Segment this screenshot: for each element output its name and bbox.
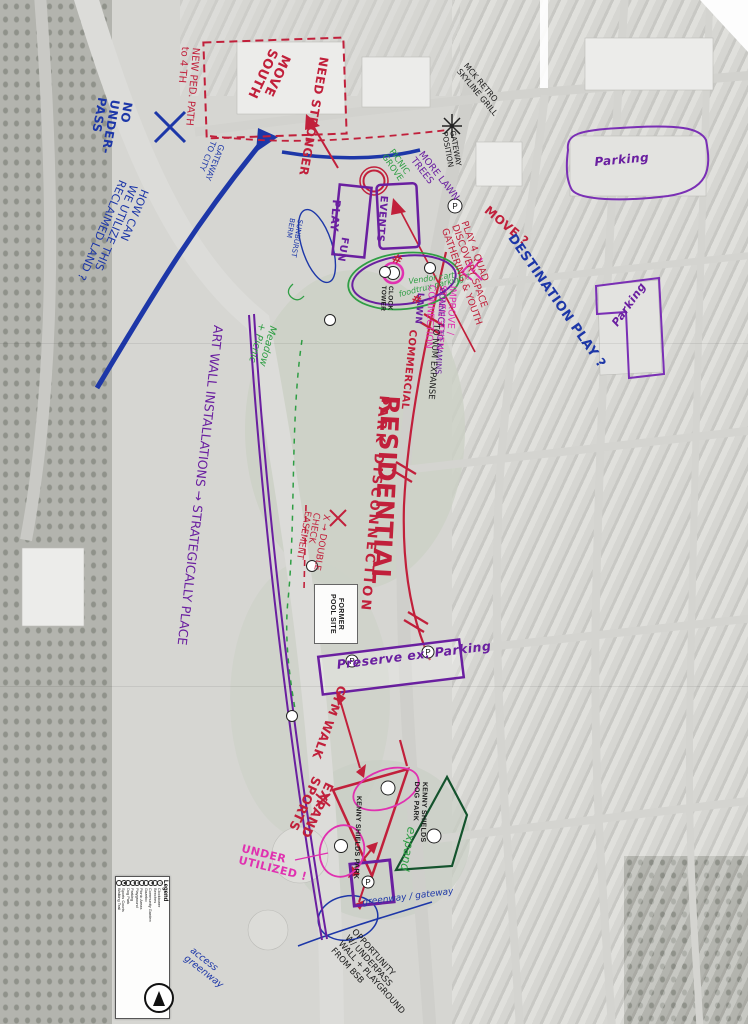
legend-item: ▲Playground xyxy=(135,880,140,1015)
clock-tower-label: CLOCK TOWER xyxy=(379,286,394,312)
north-arrow-triangle xyxy=(153,991,165,1006)
green-scribble xyxy=(288,284,304,300)
legend-item: ╌Walking Trail xyxy=(117,880,122,1015)
red-x-easement xyxy=(330,510,346,526)
annotated-park-plan-scan: P P P P NO UNDER- PASS HOW CAN WE UTILIZ… xyxy=(0,0,748,1024)
walking-trail-icon xyxy=(325,315,336,326)
walking-trail-icon xyxy=(287,711,298,722)
sports-courts-icon xyxy=(381,781,395,795)
legend-item-label: Playground xyxy=(135,888,140,908)
legend-item-label: Walking Trail xyxy=(117,888,122,910)
picnic-icon xyxy=(425,263,436,274)
legend-item-label: Benches xyxy=(153,888,158,903)
fold-crease xyxy=(0,343,748,344)
legend-item: PParking xyxy=(131,880,136,1015)
playground-icon xyxy=(335,840,348,853)
legend-item: ●Sports Courts xyxy=(122,880,127,1015)
dog-park-icon xyxy=(427,829,441,843)
north-arrow xyxy=(144,983,174,1013)
legend-item-label: Dog Park xyxy=(126,888,131,904)
note-play: PLAY xyxy=(327,199,342,232)
red-arrow-triangle xyxy=(400,740,407,766)
parking-icon-letter: P xyxy=(452,202,457,211)
parking-icon-letter: P xyxy=(365,878,370,887)
red-dashed-path xyxy=(210,130,448,141)
gym-arrowhead-bottom xyxy=(356,764,366,778)
gym-walk-arrow xyxy=(340,700,360,768)
legend-item-label: Sports Courts xyxy=(121,888,126,912)
red-sports-triangle xyxy=(333,769,408,876)
legend-item-label: Gazebo xyxy=(144,888,149,902)
former-pool-site-label: FORMER POOL SITE xyxy=(315,585,357,643)
red-arrowhead-1 xyxy=(391,198,406,215)
former-pool-site-box: FORMER POOL SITE xyxy=(314,584,358,644)
legend-item-label: Community Garden xyxy=(148,888,153,922)
legend-item-label: Parking xyxy=(130,888,135,901)
gazebo-icon xyxy=(380,267,391,278)
legend-item: ⚑Dog Park xyxy=(126,880,131,1015)
legend-item-label: Clocktower xyxy=(157,888,162,907)
kenny-shields-dog-park-label: KENNY SHIELDS DOG PARK xyxy=(411,781,428,842)
blue-gateway-arrow xyxy=(97,142,262,388)
fold-crease xyxy=(0,686,748,687)
legend-item-label: Picnic Areas xyxy=(139,888,144,909)
